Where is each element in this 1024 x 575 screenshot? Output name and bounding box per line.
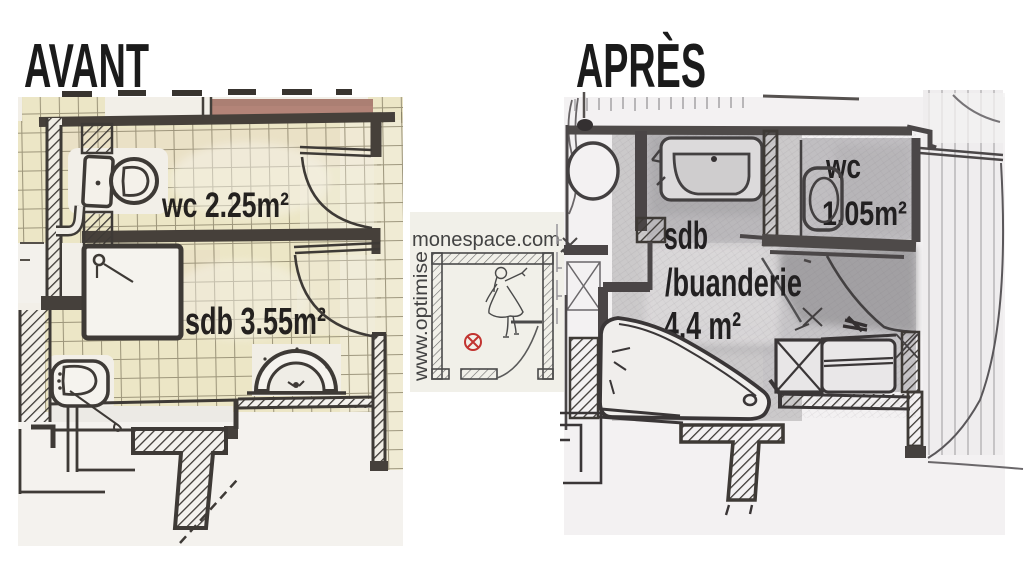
svg-text:sdb: sdb [664, 215, 708, 258]
svg-text:sdb 3.55m²: sdb 3.55m² [185, 301, 326, 343]
svg-text:/buanderie: /buanderie [665, 262, 802, 305]
svg-text:www.optimise: www.optimise [411, 251, 432, 382]
svg-text:wc 2.25m²: wc 2.25m² [161, 186, 289, 225]
svg-text:monespace.com: monespace.com [412, 229, 560, 251]
svg-text:APRÈS: APRÈS [576, 32, 706, 101]
svg-text:AVANT: AVANT [24, 32, 149, 101]
